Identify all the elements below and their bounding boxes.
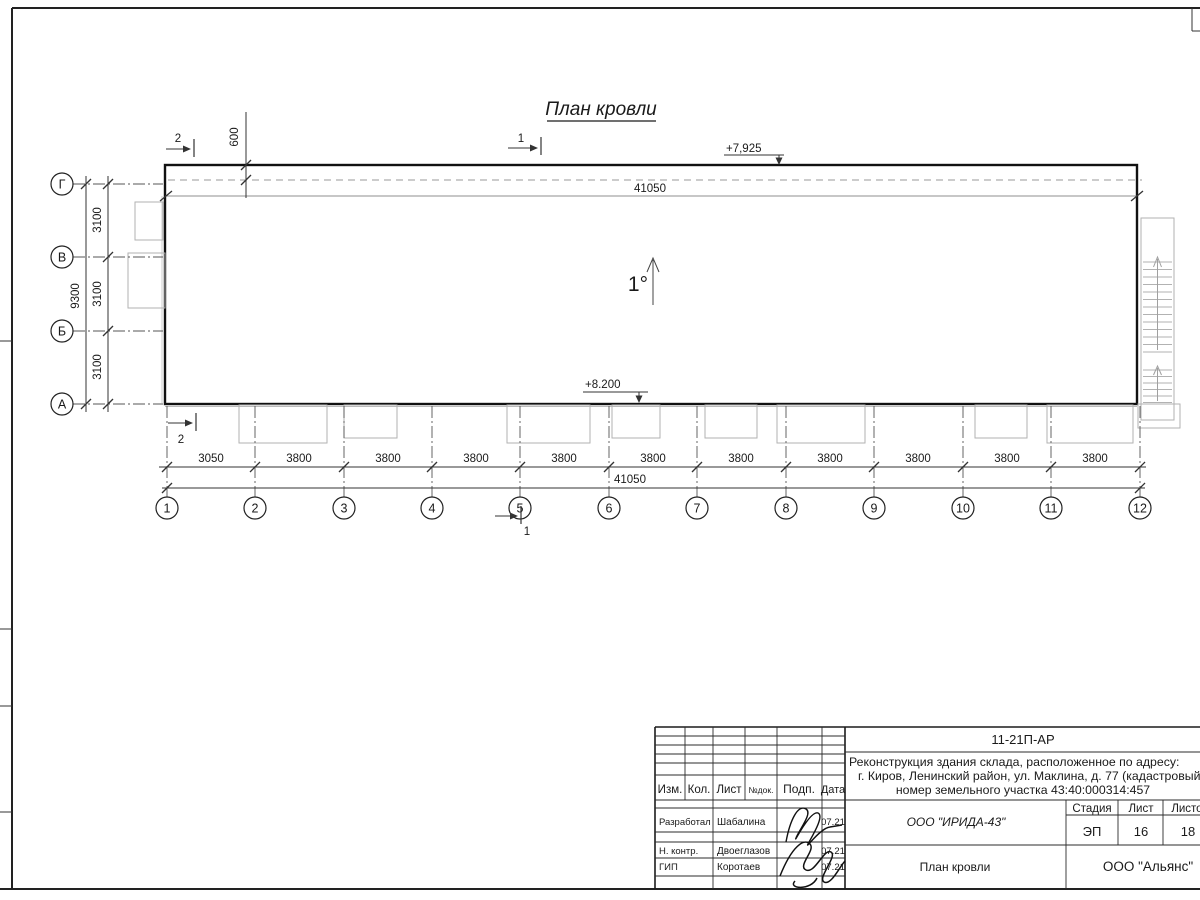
sheets-label: Листов (1171, 803, 1200, 815)
dim-seg-9: 3800 (905, 453, 931, 465)
row2-name: Двоеглазов (717, 846, 770, 857)
bottom-segment-dimension: 3050 3800 3800 3800 3800 3800 3800 3800 … (159, 453, 1146, 472)
header-data: Дата (821, 784, 846, 796)
elevation-bottom-mark: +8.200 (583, 379, 648, 403)
doc-number: 11-21П-АР (991, 732, 1054, 747)
dim-left-seg-3: 3100 (92, 354, 104, 380)
section-mark-1-top: 1 (508, 133, 541, 155)
row3-name: Коротаев (717, 862, 760, 873)
row3-role: ГИП (659, 862, 678, 873)
project-desc-line1: Реконструкция здания склада, расположенн… (849, 755, 1179, 769)
annex-outlines (128, 202, 165, 308)
stage-label: Стадия (1072, 803, 1111, 815)
dim-left-seg-2: 3100 (92, 281, 104, 307)
elevation-top-mark: +7,925 (724, 143, 784, 165)
sheets-value: 18 (1181, 824, 1195, 839)
axis-row-a: А (58, 398, 67, 412)
project-desc-line3: номер земельного участка 43:40:000314:45… (896, 783, 1150, 797)
project-desc-line2: г. Киров, Ленинский район, ул. Маклина, … (858, 769, 1200, 783)
row1-name: Шабалина (717, 816, 766, 828)
header-podp: Подп. (783, 782, 815, 796)
sheet-label: Лист (1129, 803, 1155, 815)
external-stair (1138, 218, 1180, 428)
header-list: Лист (717, 784, 743, 796)
header-izm: Изм. (658, 784, 683, 796)
dim-seg-1: 3050 (198, 453, 224, 465)
signature-1 (786, 808, 842, 845)
axis-col-12: 12 (1133, 502, 1147, 516)
stage-value: ЭП (1083, 824, 1102, 839)
sheet-value: 16 (1134, 824, 1148, 839)
dim-left-seg-1: 3100 (92, 207, 104, 233)
dim-seg-10: 3800 (994, 453, 1020, 465)
slope-direction-arrow (647, 258, 659, 305)
axis-col-6: 6 (606, 502, 613, 516)
dim-seg-4: 3800 (463, 453, 489, 465)
company-name: ООО "Альянс" (1103, 859, 1193, 874)
left-total-dimension: 9300 (70, 176, 91, 412)
axis-col-11: 11 (1045, 502, 1058, 516)
top-total-dimension: 41050 (160, 183, 1143, 201)
axis-col-2: 2 (252, 502, 259, 516)
dim-seg-11: 3800 (1082, 453, 1108, 465)
overhang-dimension (241, 112, 251, 198)
dim-seg-3: 3800 (375, 453, 401, 465)
drawing-sheet: { "drawing": { "title": "План кровли", "… (0, 0, 1200, 900)
axis-row-b: Б (58, 325, 66, 339)
axis-col-1: 1 (164, 502, 171, 516)
dim-seg-6: 3800 (640, 453, 666, 465)
org-name: ООО "ИРИДА-43" (907, 815, 1007, 829)
section-1-label-top: 1 (518, 133, 524, 145)
header-ndok: №док. (749, 785, 774, 795)
column-axis-bubbles (156, 497, 1151, 519)
dim-bottom-total: 41050 (614, 474, 646, 486)
section-mark-2-bottom: 2 (168, 413, 196, 446)
axis-col-5: 5 (517, 502, 524, 516)
axis-col-4: 4 (429, 502, 436, 516)
axis-col-7: 7 (694, 502, 701, 516)
slope-label: 1° (628, 273, 648, 296)
roof-outline (165, 165, 1137, 404)
dim-left-total: 9300 (70, 283, 82, 309)
axis-col-8: 8 (783, 502, 790, 516)
row2-role: Н. контр. (659, 846, 698, 857)
canopy-outlines (239, 405, 1133, 443)
axis-row-v: В (58, 251, 66, 265)
elevation-bottom-value: +8.200 (585, 379, 621, 391)
header-kol: Кол. (688, 784, 711, 796)
axis-row-g: Г (59, 178, 66, 192)
section-1-label-bottom: 1 (524, 526, 530, 538)
column-axis-lines (167, 406, 1140, 497)
dim-top-total: 41050 (634, 183, 666, 195)
frame-margin-marks (0, 8, 1200, 812)
row1-role: Разработал (659, 817, 711, 828)
dim-overhang: 600 (229, 127, 241, 146)
plan-title: План кровли (545, 99, 657, 120)
row-axis-labels: Г В Б А (58, 178, 67, 412)
axis-col-10: 10 (956, 502, 970, 516)
titleblock-sheet-title: План кровли (920, 860, 991, 874)
bottom-total-dimension: 41050 (162, 474, 1145, 493)
dim-seg-5: 3800 (551, 453, 577, 465)
dim-seg-2: 3800 (286, 453, 312, 465)
dim-seg-8: 3800 (817, 453, 843, 465)
elevation-top-value: +7,925 (726, 143, 762, 155)
dim-seg-7: 3800 (728, 453, 754, 465)
axis-col-9: 9 (871, 502, 878, 516)
section-mark-2-top: 2 (166, 133, 194, 157)
section-2-label-bottom: 2 (178, 434, 184, 446)
plan-canvas: План кровли 41050 600 1° +7,925 +8.200 (0, 0, 1200, 900)
section-2-label-top: 2 (175, 133, 181, 145)
left-segment-dimension: 3100 3100 3100 (92, 176, 113, 412)
axis-col-3: 3 (341, 502, 348, 516)
column-axis-labels: 1 2 3 4 5 6 7 8 9 10 11 12 (164, 502, 1147, 516)
